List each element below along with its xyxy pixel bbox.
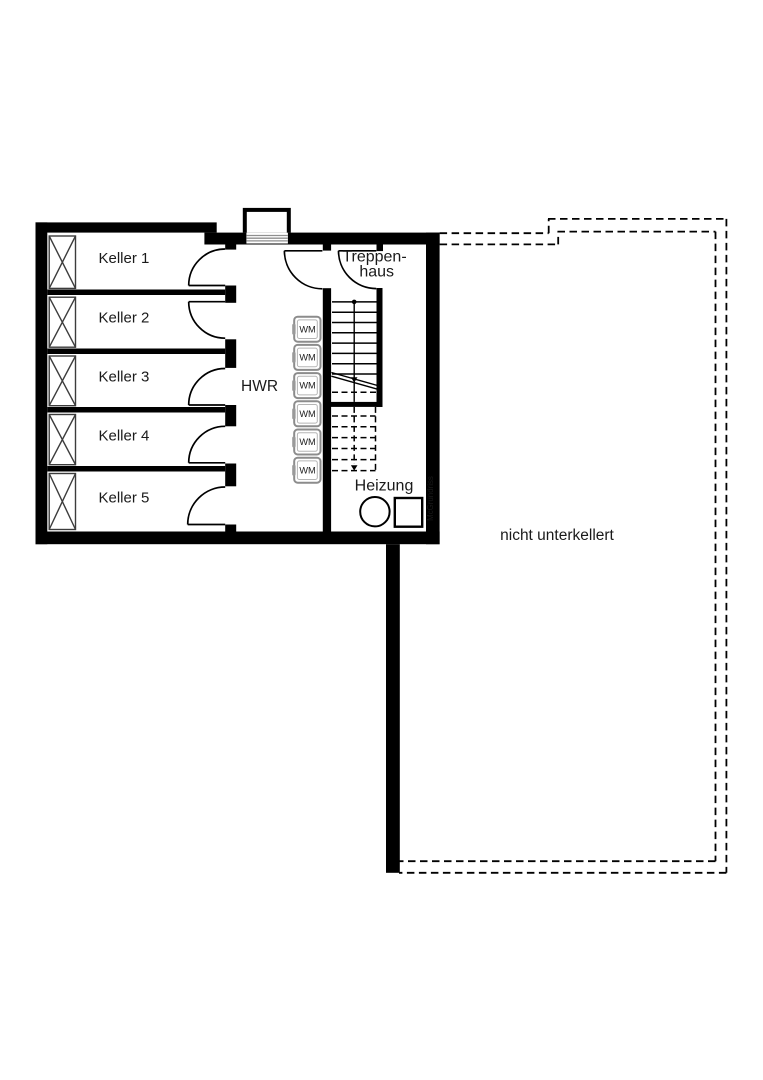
svg-text:Keller 4: Keller 4 bbox=[99, 428, 150, 445]
svg-text:WM: WM bbox=[299, 465, 315, 475]
svg-text:McGrundriss: McGrundriss bbox=[426, 476, 435, 521]
svg-text:HWR: HWR bbox=[241, 378, 278, 395]
svg-text:Keller 1: Keller 1 bbox=[99, 250, 150, 267]
svg-text:Keller 3: Keller 3 bbox=[99, 369, 150, 386]
svg-text:Heizung: Heizung bbox=[355, 478, 414, 495]
svg-text:WM: WM bbox=[299, 381, 315, 391]
svg-text:Keller 2: Keller 2 bbox=[99, 310, 150, 327]
svg-text:haus: haus bbox=[359, 263, 394, 280]
svg-text:WM: WM bbox=[299, 409, 315, 419]
svg-text:WM: WM bbox=[299, 437, 315, 447]
svg-text:WM: WM bbox=[299, 324, 315, 334]
svg-text:nicht unterkellert: nicht unterkellert bbox=[500, 527, 614, 544]
svg-text:Keller 5: Keller 5 bbox=[99, 490, 150, 507]
svg-text:WM: WM bbox=[299, 353, 315, 363]
